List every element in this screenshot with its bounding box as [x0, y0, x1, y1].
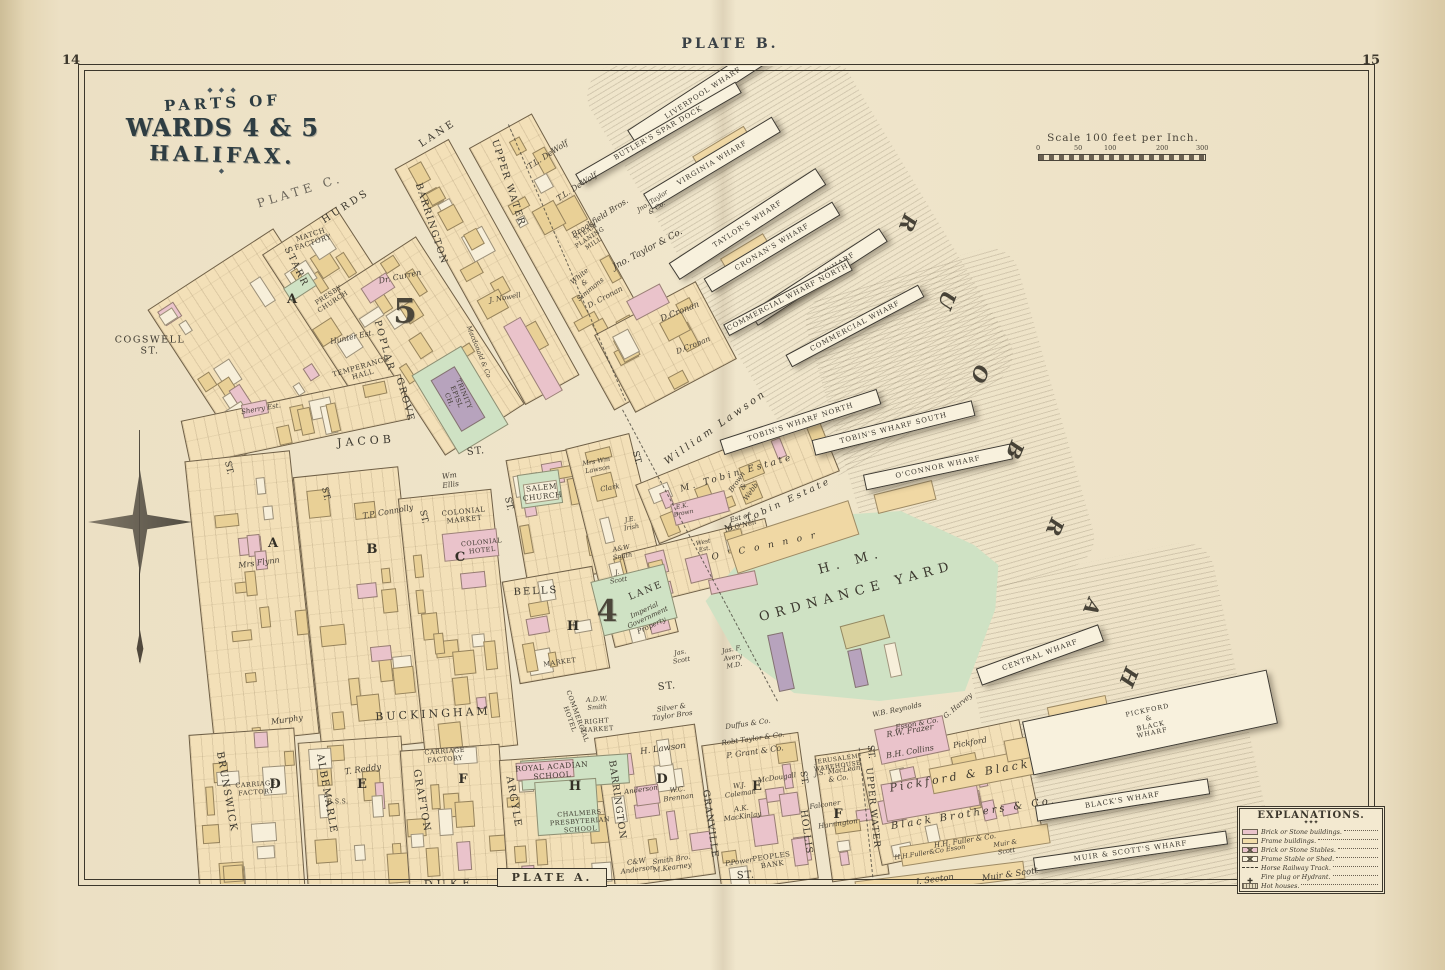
city-block [188, 728, 305, 897]
legend-item: Brick or Stone buildings. [1242, 827, 1380, 836]
building [320, 624, 347, 647]
building [665, 810, 678, 840]
dash-swatch [1242, 867, 1258, 868]
block-letter: A [268, 536, 278, 552]
owner-label: A.D.W.Smith [586, 695, 608, 712]
building [483, 640, 497, 670]
street-label: ST. [466, 445, 485, 459]
building [460, 571, 487, 590]
building [335, 251, 357, 278]
scale-bar-rule [1038, 154, 1206, 161]
building [303, 363, 320, 381]
owner-label: G. Harvey [942, 691, 975, 720]
block-letter: D [656, 772, 667, 788]
owner-label: Jas.Scott [671, 648, 691, 666]
legend-ornament: ✦✦✦ [1242, 821, 1380, 825]
block-letter: H [569, 779, 581, 795]
building [411, 834, 425, 849]
block-letter: B [367, 542, 378, 558]
block-letter: C [455, 550, 465, 566]
legend-label: Frame buildings. [1261, 837, 1316, 845]
page-number-right: 15 [1362, 53, 1380, 68]
legend-label: Fire plug or Hydrant. [1261, 873, 1331, 881]
building [259, 605, 271, 628]
cartouche-line2: WARDS 4 & 5 [115, 113, 330, 142]
legend-leader [1338, 848, 1378, 849]
building-label: B.S.S. [328, 798, 349, 805]
legend-item: Fire plug or Hydrant. [1242, 872, 1380, 881]
legend-item: Brick or Stone Stables. [1242, 845, 1380, 854]
building [388, 803, 399, 817]
street-label: JACOB [337, 432, 396, 449]
building [251, 822, 277, 842]
building [245, 671, 257, 683]
scale-title: Scale 100 feet per Inch. [1036, 132, 1210, 144]
wharf-name: PICKFORD&BLACKWHARF [1125, 702, 1175, 742]
building-label: RIGHTMARKET [580, 717, 614, 735]
block-letter: H [567, 619, 579, 635]
legend-label: Hot houses. [1261, 882, 1299, 890]
building [314, 838, 338, 863]
scale-bar: Scale 100 feet per Inch. 050100200300 [1036, 132, 1210, 164]
legend-leader [1301, 884, 1378, 885]
building [519, 525, 534, 555]
legend-leader [1318, 839, 1378, 840]
owner-label: Silver &Taylor Bros [651, 701, 694, 723]
legend-label: Horse Railway Track. [1261, 864, 1331, 872]
hothouse-swatch [1242, 883, 1258, 889]
street-label: ST. [864, 745, 876, 760]
legend-item: Horse Railway Track. [1242, 863, 1380, 872]
building [245, 571, 258, 596]
legend-item: Frame buildings. [1242, 836, 1380, 845]
street-label: HURDS [320, 187, 372, 227]
building [262, 505, 274, 521]
atlas-page: 14 15 PLATE B. LIVERPOOL WHARFBUTLER'S S… [0, 0, 1445, 970]
building [431, 784, 441, 809]
cartouche-line3: HALIFAX. [115, 139, 331, 170]
building [223, 864, 244, 882]
street-label: ST. [797, 770, 810, 785]
building [514, 846, 526, 864]
street-label: ST. [737, 870, 756, 883]
scale-tick: 100 [1104, 144, 1116, 152]
street-label: COGSWELLST. [115, 335, 185, 358]
building [438, 808, 454, 836]
building [522, 642, 539, 673]
owner-label: Duffus & Co. [725, 717, 771, 732]
page-number-left: 14 [62, 53, 80, 68]
building [599, 516, 615, 544]
scale-tick: 300 [1196, 144, 1208, 152]
block-letter: E [752, 779, 762, 795]
building [415, 589, 426, 613]
building [205, 787, 215, 816]
building [667, 370, 688, 390]
building [433, 632, 445, 654]
building [354, 844, 366, 860]
block-letter: A [287, 292, 297, 308]
owner-label: J.Scott [608, 568, 628, 586]
block-letter: F [458, 772, 467, 788]
owner-label: A&WSmith [611, 544, 633, 563]
building [231, 629, 252, 642]
building [254, 731, 269, 748]
pink-hatch-swatch [1242, 847, 1258, 853]
title-cartouche: ◆ ◆ ◆ PARTS OF WARDS 4 & 5 HALIFAX. ◆ [115, 86, 330, 175]
scale-tick: 0 [1036, 144, 1040, 152]
building [283, 751, 294, 767]
building [457, 841, 473, 870]
street-label: DUKE [424, 877, 475, 892]
block-letter: F [833, 807, 842, 823]
plus-swatch [1242, 874, 1258, 880]
building [413, 554, 425, 578]
legend-leader [1344, 830, 1378, 831]
building [460, 260, 484, 282]
building [178, 319, 193, 336]
building [452, 650, 476, 676]
street-label: PLATE C. [255, 171, 345, 211]
white-hatch-swatch [1242, 856, 1258, 862]
building [393, 666, 416, 694]
pink-swatch [1242, 829, 1258, 835]
tan-swatch [1242, 838, 1258, 844]
street-label: ST. [629, 450, 643, 466]
building [526, 615, 550, 635]
building [256, 845, 275, 859]
building-label: CARRIAGEFACTORY [424, 747, 466, 765]
owner-label: J.E.Irish [622, 515, 640, 533]
legend-leader [1333, 866, 1378, 867]
street-label: BELLS [513, 585, 558, 599]
legend-label: Brick or Stone buildings. [1261, 828, 1342, 836]
building [275, 424, 292, 446]
owner-label: WmEllis [441, 470, 460, 490]
owner-label: W.B. Reynolds [872, 701, 923, 720]
building [452, 676, 471, 706]
building [361, 381, 386, 398]
building [370, 645, 393, 662]
legend-leader [1333, 875, 1378, 876]
plate-a-label: PLATE A. [497, 868, 607, 887]
building [197, 371, 218, 392]
building [839, 851, 850, 866]
building-label: CHALMERSPRESBYTERIANSCHOOL [549, 808, 611, 836]
building [202, 824, 219, 844]
owner-label: Jas. F.AveryM.D. [721, 645, 744, 671]
legend-label: Brick or Stone Stables. [1261, 846, 1336, 854]
building [407, 332, 432, 359]
building [250, 276, 276, 307]
legend-item: Frame Stable or Shed. [1242, 854, 1380, 863]
building [371, 795, 383, 818]
building [536, 839, 549, 866]
building [426, 847, 441, 877]
block-letter: E [357, 777, 367, 793]
street-label: ST. [657, 680, 676, 694]
block-number: 5 [393, 292, 417, 333]
legend-item: Hot houses. [1242, 881, 1380, 890]
building [563, 886, 590, 907]
legend-label: Frame Stable or Shed. [1261, 855, 1334, 863]
legend-leader [1336, 857, 1378, 858]
building [356, 582, 377, 599]
block-letter: D [269, 777, 280, 793]
block-number: 4 [597, 594, 618, 630]
building [647, 838, 658, 855]
building [215, 513, 240, 529]
building [454, 801, 475, 828]
building [255, 476, 266, 495]
building [379, 254, 400, 274]
building [381, 588, 399, 613]
explanations-legend: EXPLANATIONS. ✦✦✦ Brick or Stone buildin… [1237, 806, 1385, 894]
building [381, 567, 392, 583]
scale-tick: 50 [1074, 144, 1082, 152]
building [331, 712, 345, 731]
plate-title: PLATE B. [660, 36, 800, 52]
scale-tick: 200 [1156, 144, 1168, 152]
